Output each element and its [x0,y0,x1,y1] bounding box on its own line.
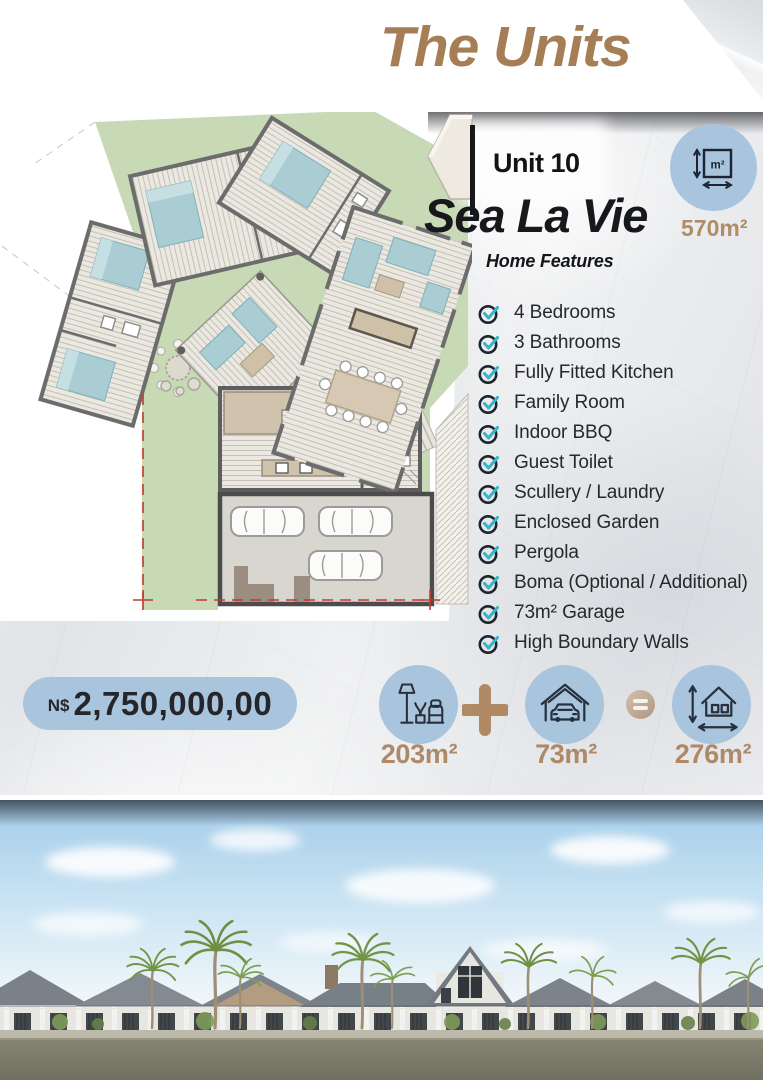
car [319,507,392,536]
flyer-page: The Units Unit 10 m² Sea La Vie 570m² Ho… [0,0,763,1080]
feature-item: Enclosed Garden [478,508,748,538]
street-elevation-render [0,800,763,1080]
interior-area-value: 203m² [364,739,474,770]
currency: N$ [48,696,70,716]
check-icon [478,452,501,475]
svg-text:m²: m² [710,159,724,171]
feature-item: 73m² Garage [478,598,748,628]
check-icon [478,332,501,355]
features-heading: Home Features [486,251,613,272]
total-area-badge [672,665,751,744]
price-amount: 2,750,000,00 [74,685,273,723]
check-icon [478,392,501,415]
check-icon [478,422,501,445]
render-top-shadow [0,800,763,826]
check-icon [478,572,501,595]
check-icon [478,512,501,535]
equals-icon [626,690,655,719]
feature-item: 3 Bathrooms [478,328,748,358]
total-area-value: 276m² [658,739,763,770]
feature-item: Scullery / Laundry [478,478,748,508]
unit-label: Unit 10 [493,148,580,179]
feature-item: 4 Bedrooms [478,298,748,328]
area-badge: m² [670,124,757,211]
page-header: The Units [0,0,763,112]
check-icon [478,482,501,505]
feature-item: Pergola [478,538,748,568]
square-meter-icon: m² [690,144,738,192]
check-icon [478,542,501,565]
check-icon [478,602,501,625]
price-tag: N$ 2,750,000,00 [23,677,297,730]
floorplan-illustration [0,98,472,622]
feature-item: Fully Fitted Kitchen [478,358,748,388]
feature-item: Boma (Optional / Additional) [478,568,748,598]
garage-area-value: 73m² [511,739,621,770]
check-icon [478,362,501,385]
page-title: The Units [380,14,631,80]
feature-item: High Boundary Walls [478,628,748,658]
unit-total-area: 570m² [681,215,747,242]
feature-item: Guest Toilet [478,448,748,478]
plus-icon [462,680,508,740]
feature-item: Family Room [478,388,748,418]
feature-item: Indoor BBQ [478,418,748,448]
check-icon [478,302,501,325]
features-list: 4 Bedrooms 3 Bathrooms Fully Fitted Kitc… [478,298,748,658]
house-dimensions-icon [684,677,740,733]
garage-icon [537,677,593,733]
car [231,507,304,536]
garage-area-badge [525,665,604,744]
check-icon [478,632,501,655]
furniture-icon [392,678,446,732]
garage [220,494,432,604]
interior-area-badge [379,665,458,744]
boundary-wall [0,1038,763,1080]
unit-name: Sea La Vie [424,188,647,243]
car [309,551,382,580]
